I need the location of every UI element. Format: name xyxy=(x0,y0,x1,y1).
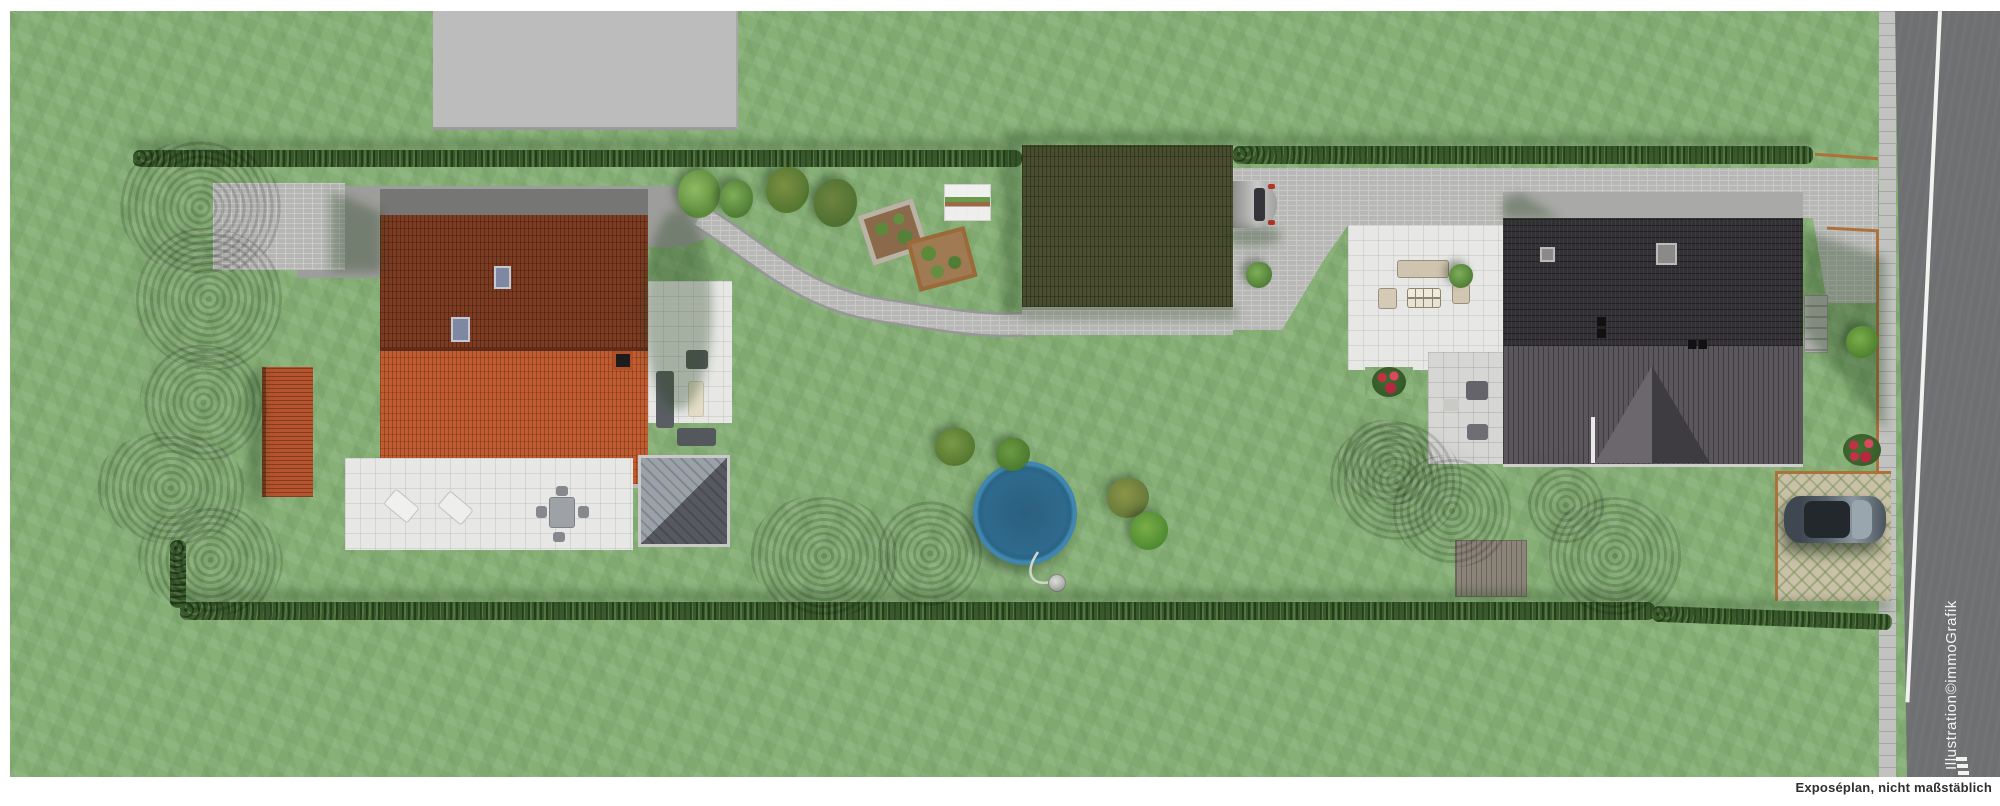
dining-chair xyxy=(556,486,568,496)
ridge-ornament xyxy=(1591,417,1595,463)
flower-bush xyxy=(1843,434,1881,466)
patio-coffee-table xyxy=(688,381,704,417)
page-margin-top xyxy=(0,0,2000,11)
car-taillight-icon xyxy=(1268,220,1275,225)
disclaimer-text: Exposéplan, nicht maßstäblich xyxy=(1500,780,1992,798)
dining-table xyxy=(549,497,575,528)
patio-glass-table xyxy=(1407,288,1441,308)
roof-vent-icon xyxy=(1688,340,1707,349)
left-house-north-wall-shadow xyxy=(380,189,648,215)
car-glass-roof xyxy=(1804,501,1850,538)
dark-wood-deck xyxy=(638,455,730,547)
patio-sofa-beige xyxy=(1397,260,1449,278)
fence-parking-left xyxy=(1775,471,1778,601)
car-taillight-icon xyxy=(1268,184,1275,189)
watermark-credit: Illustration©immoGrafik xyxy=(1943,610,1963,770)
outdoor-stairs xyxy=(1804,295,1828,353)
car-windshield xyxy=(1852,500,1872,539)
garage-apron xyxy=(1022,310,1233,335)
skylight-icon xyxy=(1656,243,1677,265)
skylight-icon xyxy=(494,266,511,289)
car-rear-window xyxy=(1254,188,1265,221)
hedge-top-left xyxy=(133,150,1022,167)
patio-sofa xyxy=(677,428,716,446)
rose-bed xyxy=(1372,367,1406,397)
chimney-icon xyxy=(613,351,633,370)
right-house-north-wall xyxy=(1503,192,1803,218)
skylight-icon xyxy=(1540,247,1555,262)
south-dining-chair xyxy=(1443,399,1459,411)
hedge-top-right xyxy=(1233,146,1813,164)
round-pool xyxy=(973,461,1077,565)
cold-frame xyxy=(944,184,991,221)
dining-chair xyxy=(553,532,565,542)
right-house-roof-north xyxy=(1503,218,1803,346)
left-house-roof-north xyxy=(380,215,648,348)
dining-chair xyxy=(536,506,547,518)
pool-pump xyxy=(1048,574,1066,592)
tree xyxy=(1338,420,1438,505)
tree-yellow xyxy=(876,500,984,607)
roof-vent-icon xyxy=(1597,317,1606,338)
garden-shed-red xyxy=(262,367,313,497)
patio-armchair xyxy=(686,350,708,369)
south-dining-table xyxy=(1466,381,1488,400)
street-dash xyxy=(1958,771,1969,775)
green-roof-garage xyxy=(1022,145,1233,310)
fence-east-boundary xyxy=(1876,230,1879,473)
skylight-icon xyxy=(451,317,470,342)
patio-sofa xyxy=(656,371,674,428)
neighbor-building xyxy=(433,11,738,130)
page-margin-left xyxy=(0,0,10,806)
site-plan-page: Illustration©immoGrafik Exposéplan, nich… xyxy=(0,0,2000,806)
south-dining-table xyxy=(1467,424,1488,440)
fence-parking-top xyxy=(1775,471,1891,474)
dining-chair xyxy=(578,506,589,518)
sidewalk-curb xyxy=(1879,11,1896,777)
patio-armchair-beige xyxy=(1378,288,1397,309)
